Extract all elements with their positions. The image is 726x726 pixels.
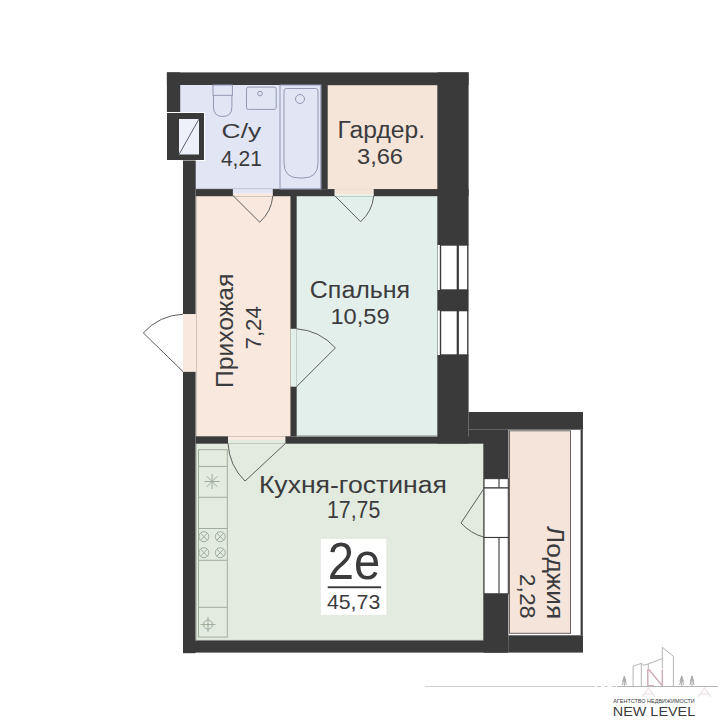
svg-text:NEW LEVEL: NEW LEVEL <box>613 704 696 719</box>
svg-text:7,24: 7,24 <box>241 306 266 349</box>
svg-text:2е: 2е <box>328 531 381 590</box>
svg-text:С/у: С/у <box>222 119 262 142</box>
svg-text:АГЕНТСТВО НЕДВИЖИМОСТИ: АГЕНТСТВО НЕДВИЖИМОСТИ <box>613 698 695 704</box>
svg-text:45,73: 45,73 <box>327 590 380 613</box>
svg-text:Лоджия: Лоджия <box>542 526 568 619</box>
svg-text:Прихожая: Прихожая <box>212 274 238 388</box>
svg-text:Гардер.: Гардер. <box>338 117 425 143</box>
svg-text:Кухня-гостиная: Кухня-гостиная <box>259 472 447 498</box>
svg-text:2,28: 2,28 <box>515 574 540 619</box>
svg-text:17,75: 17,75 <box>327 497 380 523</box>
svg-text:10,59: 10,59 <box>330 304 389 329</box>
svg-text:3,66: 3,66 <box>357 144 403 169</box>
svg-text:Спальня: Спальня <box>310 277 410 303</box>
svg-text:4,21: 4,21 <box>221 147 262 171</box>
